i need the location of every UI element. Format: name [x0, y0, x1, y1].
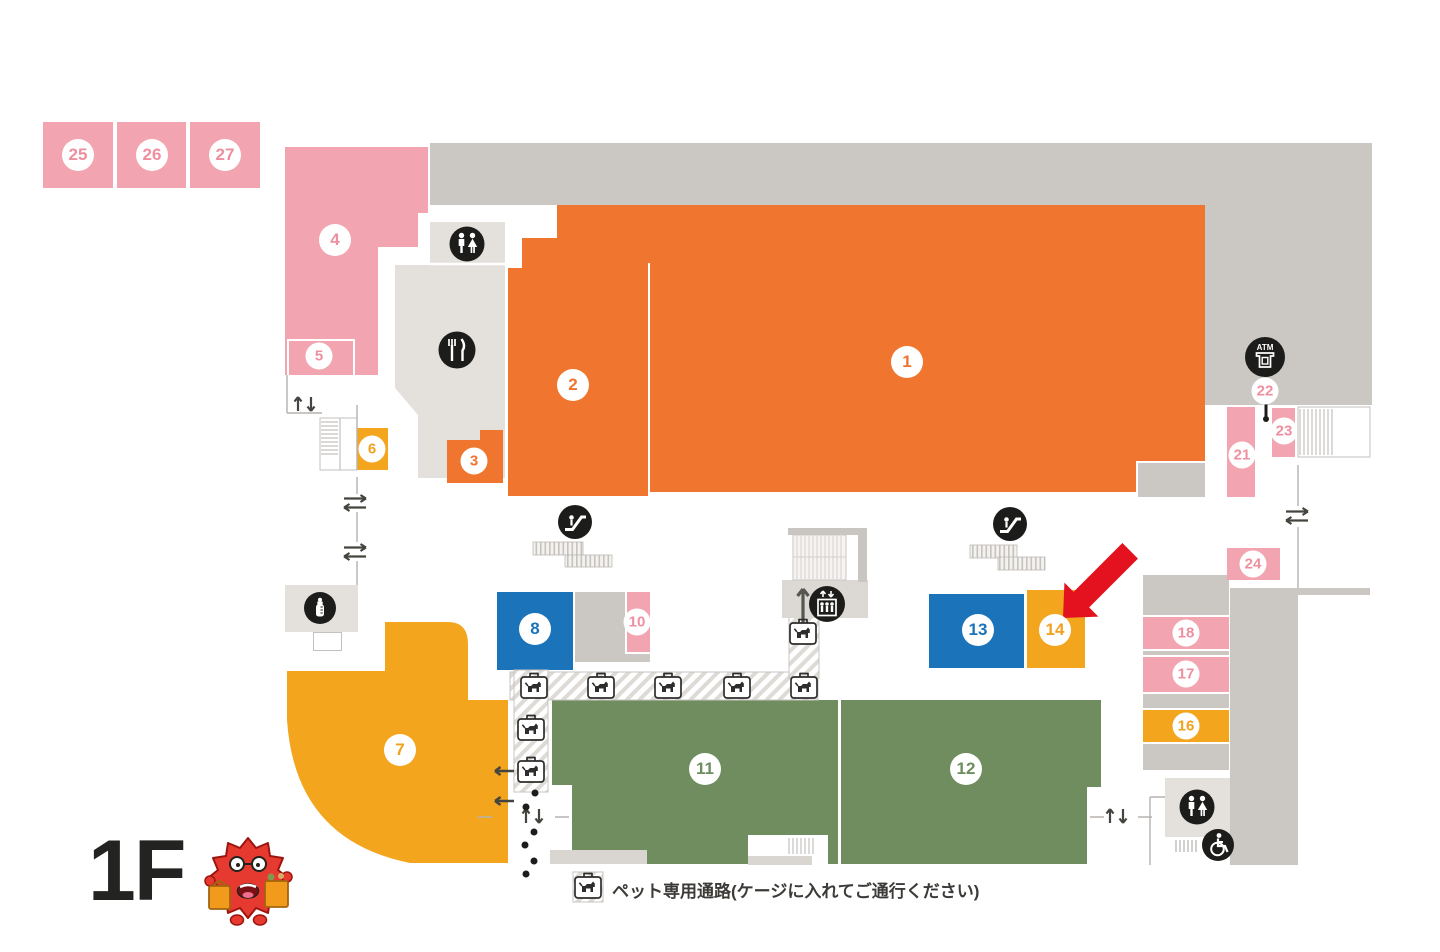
- restroom-icon-bottom-right: [1180, 790, 1215, 825]
- area-26-label: 26: [136, 139, 168, 171]
- stairs-area11-notch: [789, 838, 813, 854]
- stairs-near-area6: [320, 418, 357, 470]
- two-way-arrow-left-1: [344, 495, 366, 511]
- area-24-label: 24: [1240, 551, 1267, 578]
- pet-carrier-icon: [790, 620, 816, 645]
- floor-label: 1F: [88, 822, 184, 921]
- stairs-bottom-right: [1176, 840, 1196, 852]
- area-21-label: 21: [1229, 442, 1256, 469]
- pet-carrier-icon: [791, 674, 817, 699]
- area-7-label: 7: [384, 734, 416, 766]
- atm-icon: ATM: [1245, 337, 1285, 377]
- pet-carrier-icon: [518, 758, 544, 783]
- area-27-label: 27: [209, 139, 241, 171]
- area-6-label: 6: [359, 436, 386, 463]
- updown-arrow-bottom-left: [523, 809, 543, 823]
- pet-carrier-icon: [521, 674, 547, 699]
- area-8-label: 8: [519, 613, 551, 645]
- two-way-arrow-right: [1286, 508, 1308, 524]
- two-way-arrow-left-2: [344, 544, 366, 560]
- area-11-label: 11: [689, 753, 721, 785]
- area-2-label: 2: [557, 369, 589, 401]
- pet-carrier-icon: [655, 674, 681, 699]
- area-4-label: 4: [319, 224, 351, 256]
- pet-carrier-icon-legend: [575, 874, 601, 899]
- pet-path-legend-text: ペット専用通路(ケージに入れてご通行ください): [612, 877, 979, 902]
- area-5-label: 5: [306, 343, 333, 370]
- restaurant-icon: [439, 332, 476, 369]
- area-3-label: 3: [461, 448, 488, 475]
- area-10-label: 10: [624, 609, 651, 636]
- area-1-label: 1: [891, 346, 923, 378]
- area-14-label: 14: [1039, 614, 1071, 646]
- area-22-label: 22: [1252, 378, 1279, 405]
- dotted-trail: [522, 790, 539, 878]
- area-22-pointer: [1263, 403, 1269, 422]
- area-18-label: 18: [1173, 620, 1200, 647]
- area-13-label: 13: [962, 614, 994, 646]
- escalator-icon-left: [558, 505, 592, 539]
- area-25-label: 25: [62, 139, 94, 171]
- updown-arrow-left: [295, 397, 315, 411]
- restroom-icon: [450, 227, 485, 262]
- escalator-steps: [533, 542, 1045, 570]
- pet-carrier-icon: [518, 716, 544, 741]
- atm-icon-label: ATM: [1257, 343, 1274, 352]
- wheelchair-icon: [1202, 829, 1234, 861]
- mascot-character: [205, 838, 292, 925]
- area-17-label: 17: [1173, 661, 1200, 688]
- stairs-top-right: [1298, 407, 1370, 457]
- nursing-room-icon: [304, 592, 336, 624]
- pet-carrier-icon: [588, 674, 614, 699]
- area-23-label: 23: [1271, 418, 1298, 445]
- pet-carrier-icon: [724, 674, 750, 699]
- escalator-icon-right: [993, 507, 1027, 541]
- elevator-icon: [809, 586, 845, 622]
- area-12-label: 12: [950, 753, 982, 785]
- floor-map-1f: ATM: [0, 0, 1440, 952]
- updown-arrow-bottom-right: [1107, 809, 1127, 823]
- area-16-label: 16: [1173, 713, 1200, 740]
